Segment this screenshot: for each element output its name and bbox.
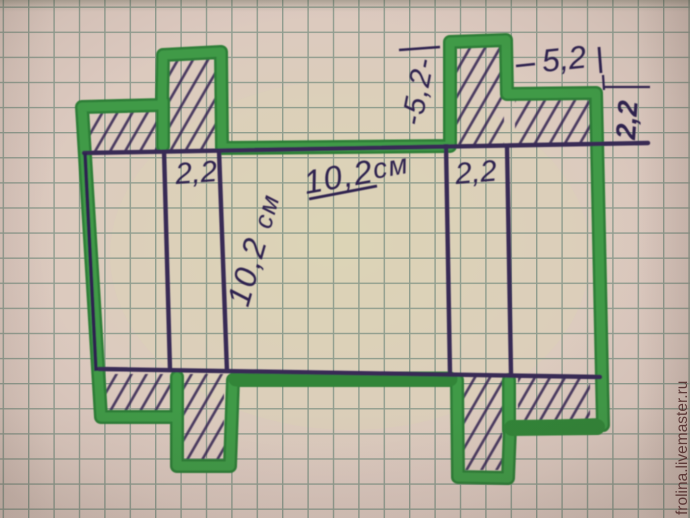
svg-text:frolina.livemaster.ru: frolina.livemaster.ru (674, 381, 690, 515)
